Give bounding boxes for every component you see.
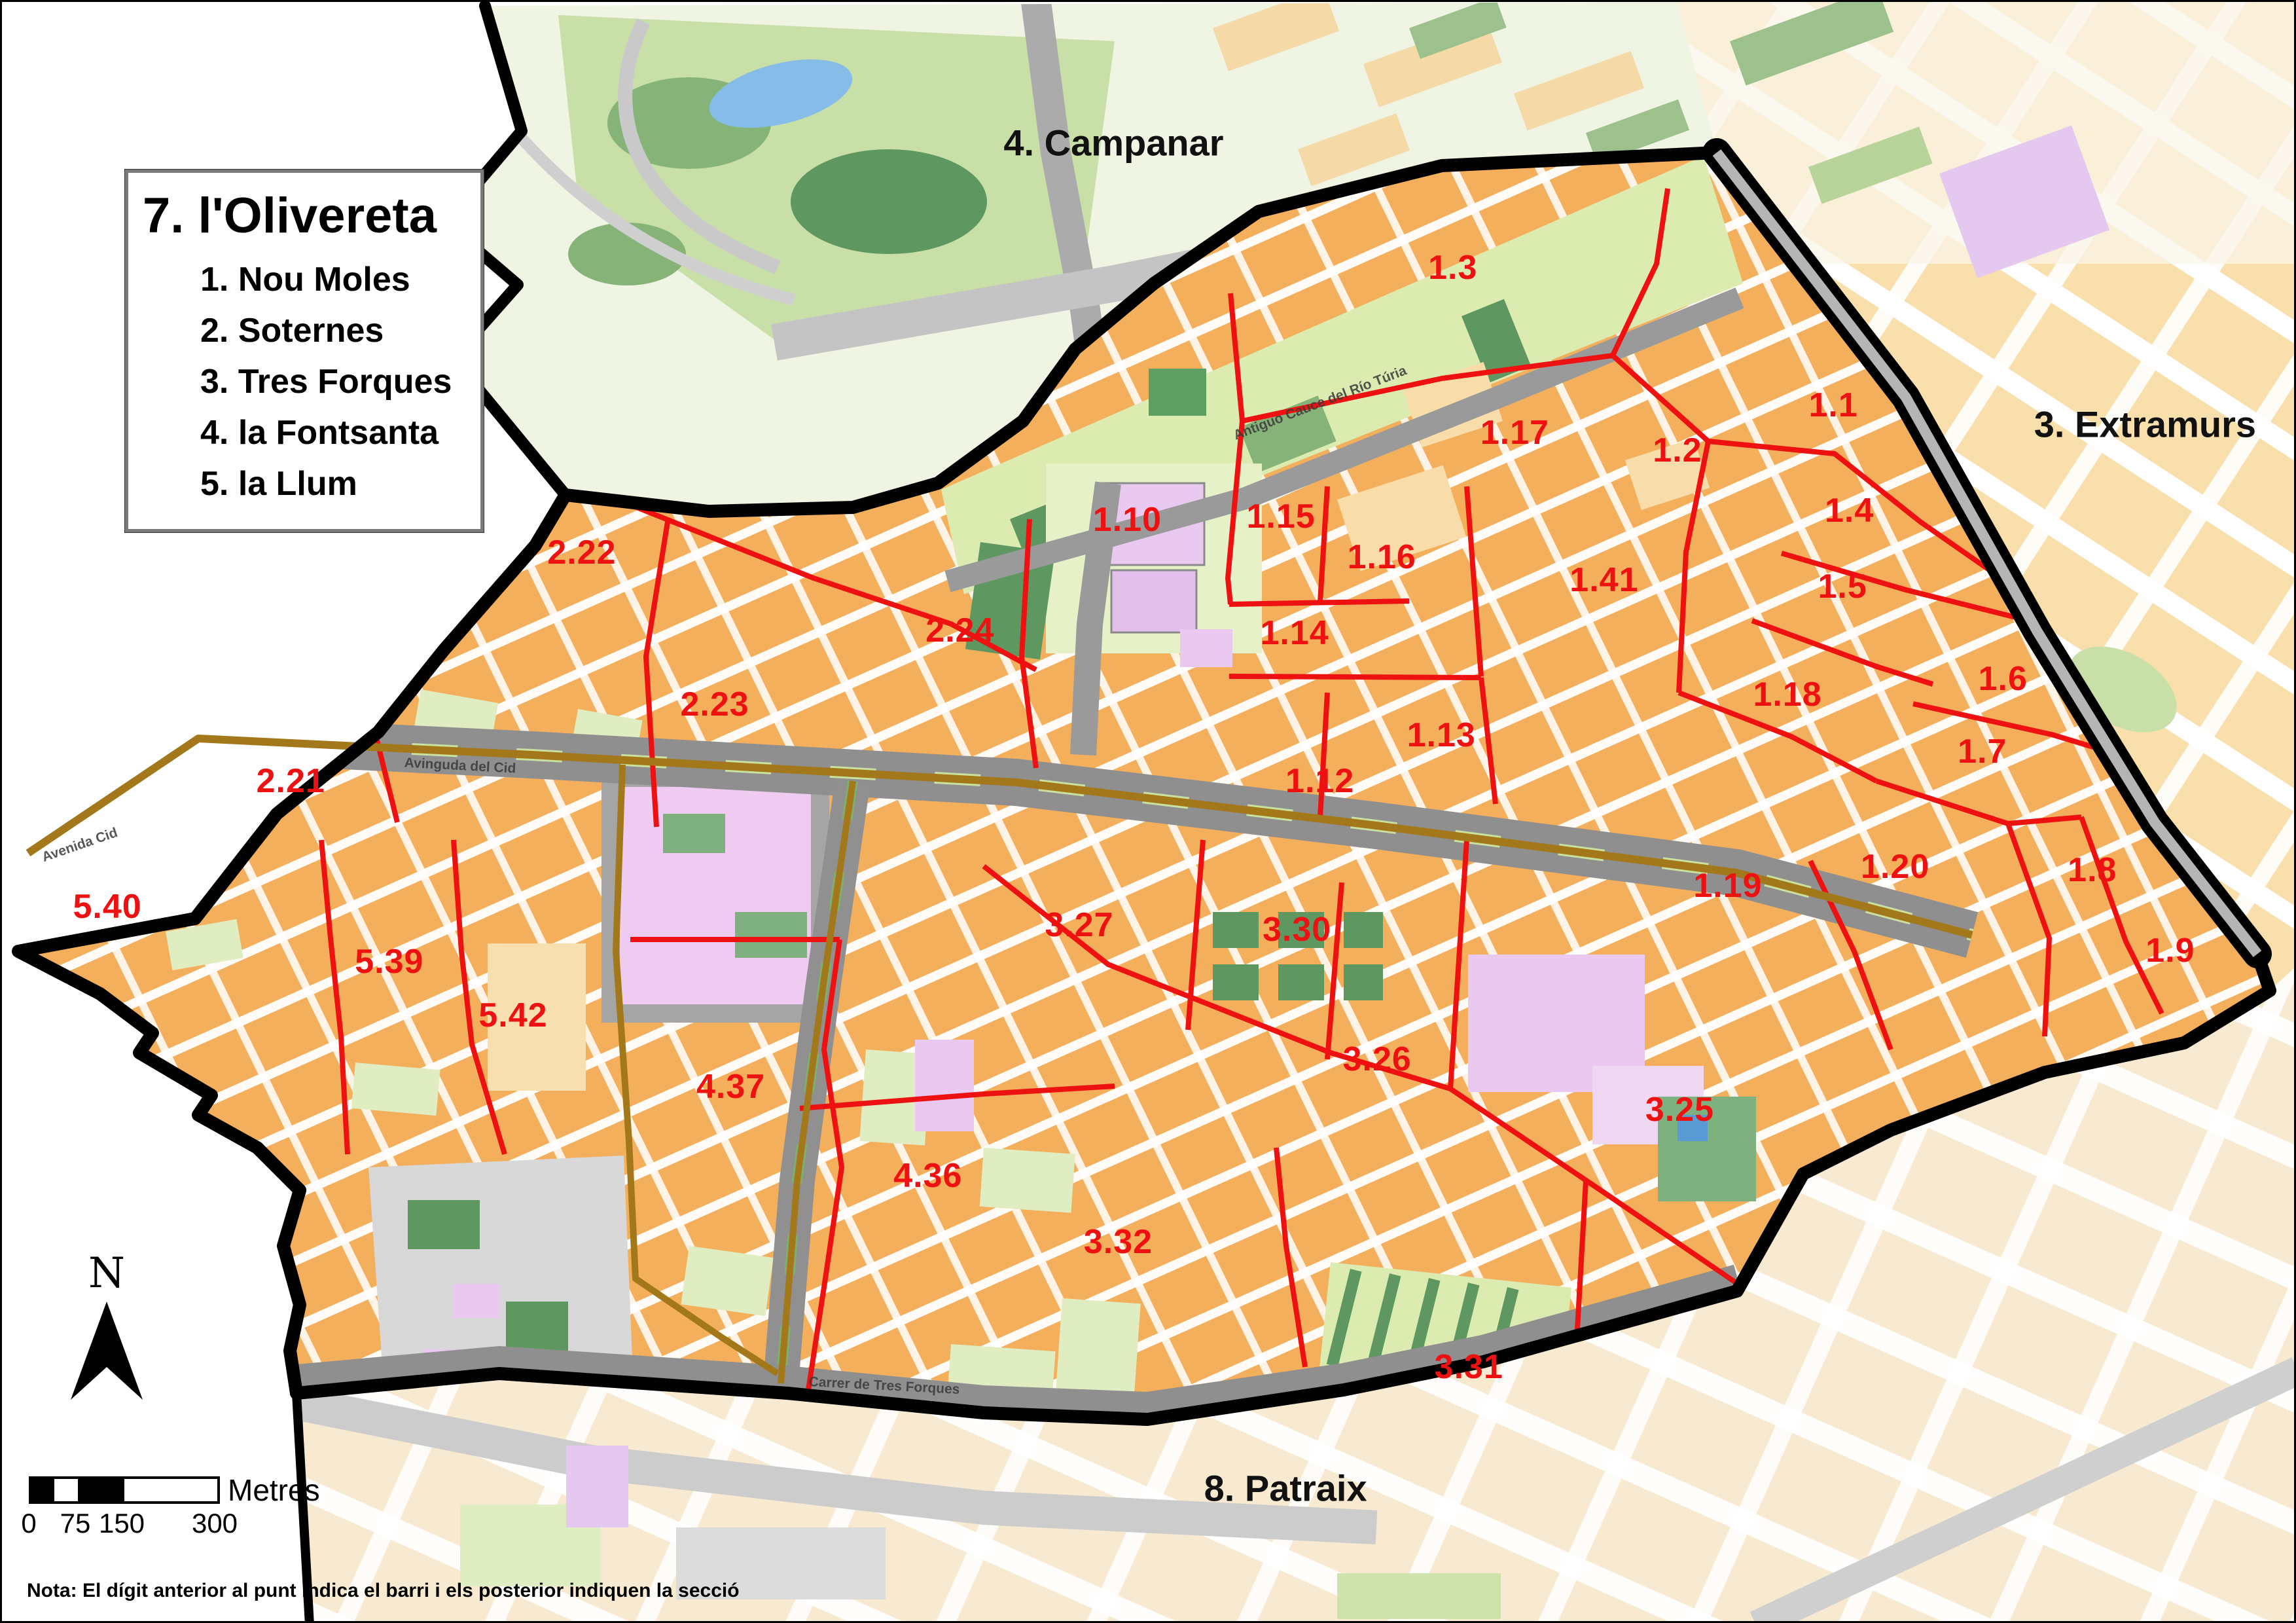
scale-tick-label: 300	[192, 1508, 238, 1539]
district-map-canvas: 7. l'Olivereta 1. Nou Moles2. Soternes3.…	[0, 0, 2296, 1623]
scale-bar-segments	[29, 1476, 220, 1504]
barri-list: 1. Nou Moles2. Soternes3. Tres Forques4.…	[143, 254, 474, 509]
scale-tick-label: 150	[99, 1508, 145, 1539]
barri-list-item: 4. la Fontsanta	[200, 407, 474, 458]
scale-tick-label: 75	[60, 1508, 91, 1539]
scale-bar: 075150300 Metres	[29, 1476, 225, 1541]
scale-tick-label: 0	[21, 1508, 36, 1539]
title-box: 7. l'Olivereta 1. Nou Moles2. Soternes3.…	[125, 170, 484, 532]
district-title: 7. l'Olivereta	[143, 190, 474, 242]
scale-bar-unit: Metres	[228, 1472, 320, 1508]
barri-list-item: 1. Nou Moles	[200, 254, 474, 305]
barri-list-item: 5. la Llum	[200, 458, 474, 509]
map-note: Nota: El dígit anterior al punt indica e…	[27, 1580, 740, 1602]
north-label: N	[88, 1249, 125, 1298]
barri-list-item: 3. Tres Forques	[200, 356, 474, 407]
scale-bar-ticks: 075150300	[29, 1508, 225, 1541]
barri-list-item: 2. Soternes	[200, 305, 474, 356]
